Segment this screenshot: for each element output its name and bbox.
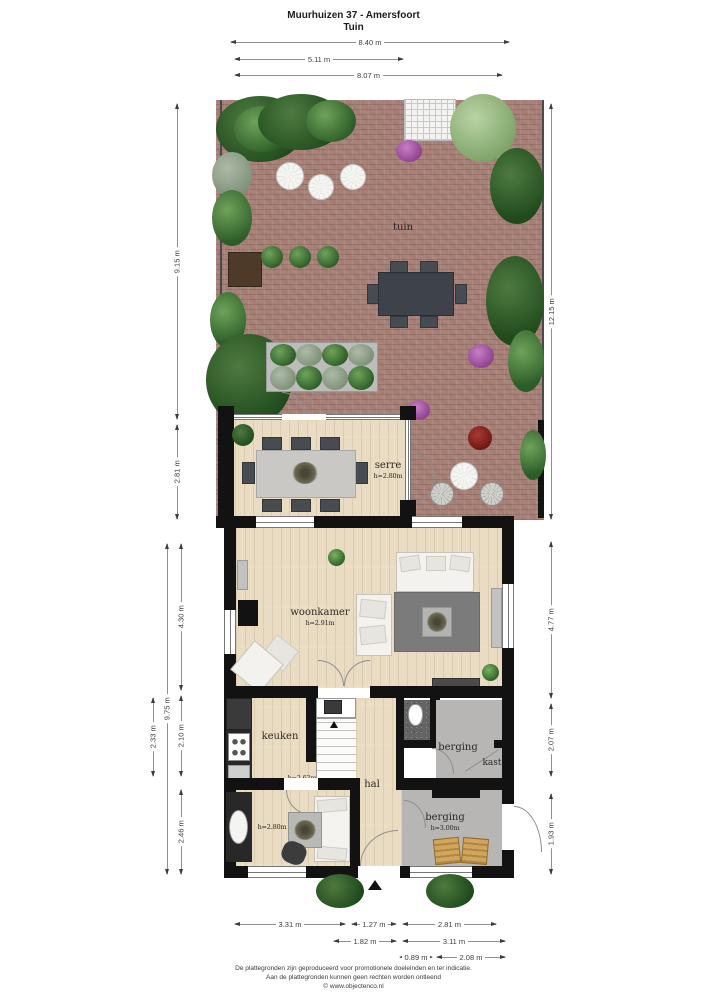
kitchen-cabinet xyxy=(226,698,252,730)
dimension-left-house-total: 9.75 m xyxy=(163,543,172,875)
bush xyxy=(490,148,544,224)
front-door-gap xyxy=(358,866,400,878)
serre-chair xyxy=(320,437,340,450)
footer-copyright: © www.objectenco.nl xyxy=(0,983,707,990)
dimension-top-inner1: 5.11 m xyxy=(234,55,404,64)
dimension-bottom-4: 1.82 m xyxy=(333,937,397,946)
window-woonkamer-north2 xyxy=(412,516,462,528)
serre-chair xyxy=(291,437,311,450)
wall-mid-1 xyxy=(224,686,318,698)
dimension-right-berging-onder: 1.93 m xyxy=(547,793,556,875)
dimension-left-keuken: 2.10 m xyxy=(177,695,186,777)
bush xyxy=(508,330,544,392)
dimension-left-mid: 2.33 m xyxy=(149,697,158,777)
room-height-serre: h=2.80m xyxy=(363,472,413,480)
street-tree xyxy=(426,874,474,908)
room-label-tuin: tuin xyxy=(378,222,428,233)
lounge-chair xyxy=(461,837,489,865)
flower-purple xyxy=(468,344,494,368)
window-bottom-left xyxy=(248,866,306,878)
dimension-left-woonkamer: 4.30 m xyxy=(177,543,186,691)
chimney-stub xyxy=(238,600,258,626)
street-tree xyxy=(316,874,364,908)
dimension-left-kamer: 2.46 m xyxy=(177,789,186,875)
window-left xyxy=(224,610,236,654)
toilet-wc xyxy=(408,704,423,726)
parasol xyxy=(340,164,366,190)
planter-plant xyxy=(322,344,348,366)
bush xyxy=(212,190,252,246)
serre-chair xyxy=(262,499,282,512)
planter-plant xyxy=(296,344,322,366)
bush xyxy=(306,100,356,142)
dimension-right-berging: 2.07 m xyxy=(547,703,556,777)
parasol xyxy=(308,174,334,200)
window-woonkamer-north1 xyxy=(256,516,314,528)
planter-plant xyxy=(322,366,348,390)
room-label-berging-onder: berging xyxy=(415,812,475,823)
serre-chair xyxy=(262,437,282,450)
entrance-arrow-icon xyxy=(368,880,382,890)
serre-chair xyxy=(291,499,311,512)
houseplant xyxy=(328,549,345,566)
planter-box xyxy=(228,252,262,287)
stair-direction-icon xyxy=(330,721,338,728)
room-label-berging: berging xyxy=(428,742,488,753)
patio-chair xyxy=(480,482,504,506)
dimension-left-serre: 2.81 m xyxy=(173,424,182,520)
serre-chair xyxy=(242,462,255,484)
planter-plant xyxy=(348,366,374,390)
room-height-berging-onder: h=3.00m xyxy=(415,824,475,832)
radiator xyxy=(491,588,502,648)
bush xyxy=(486,256,544,346)
round-bush xyxy=(289,246,311,268)
berging-exterior-door-arc xyxy=(514,806,542,852)
planter-plant xyxy=(270,366,296,390)
sofa-cushion xyxy=(399,555,421,573)
serre-plant xyxy=(232,424,254,446)
plant-red xyxy=(468,426,492,450)
table-plant xyxy=(292,462,318,484)
serre-chair xyxy=(320,499,340,512)
appliance xyxy=(324,700,342,714)
dimension-bottom-5: 3.11 m xyxy=(402,937,506,946)
garden-trellis xyxy=(404,99,456,141)
garden-chair xyxy=(420,316,438,328)
footer-disclaimer-1: De plattegronden zijn geproduceerd voor … xyxy=(0,965,707,972)
houseplant xyxy=(482,664,499,681)
page-title: Muurhuizen 37 - Amersfoort xyxy=(0,10,707,21)
dimension-bottom-3: 2.81 m xyxy=(402,920,497,929)
garden-table xyxy=(378,272,454,316)
garden-chair xyxy=(390,316,408,328)
planter-plant xyxy=(270,344,296,366)
stove xyxy=(228,733,250,761)
room-label-kast: kast xyxy=(470,758,514,768)
berging-onder-chimney xyxy=(432,786,480,798)
patio-round-table xyxy=(450,462,478,490)
flower-purple xyxy=(396,140,422,162)
page-subtitle: Tuin xyxy=(0,22,707,33)
radiator xyxy=(237,560,248,590)
kamer-door-gap xyxy=(284,778,318,790)
dimension-right-garden: 12.15 m xyxy=(547,103,556,520)
wall-kamer-right xyxy=(350,790,360,866)
dimension-top-inner2: 8.07 m xyxy=(234,71,503,80)
planter-plant xyxy=(296,366,322,390)
footer-disclaimer-2: Aan de plattegronden kunnen geen rechten… xyxy=(0,974,707,981)
dimension-right-woonkamer: 4.77 m xyxy=(547,541,556,699)
wall-kast-stub xyxy=(494,740,508,748)
bush xyxy=(520,430,546,480)
room-height-woonkamer: h=2.91m xyxy=(270,619,370,627)
dimension-left-garden: 9.15 m xyxy=(173,103,182,420)
serre-door-gap xyxy=(282,414,326,420)
wall-hal-right xyxy=(396,698,404,778)
dimension-bottom-6: 0.89 m xyxy=(399,953,433,962)
lounge-chair xyxy=(433,837,462,866)
sofa-cushion xyxy=(359,625,387,646)
dimension-bottom-1: 3.31 m xyxy=(234,920,346,929)
door-gap-berging-right xyxy=(502,804,514,850)
dimension-bottom-7: 2.08 m xyxy=(436,953,506,962)
room-label-serre: serre xyxy=(363,460,413,471)
round-bush xyxy=(317,246,339,268)
sofa-cushion xyxy=(449,555,471,573)
serre-corner-wall xyxy=(400,406,416,420)
dimension-top-total: 8.40 m xyxy=(230,38,510,47)
garden-chair xyxy=(455,284,467,304)
sofa-cushion xyxy=(426,556,446,571)
parasol xyxy=(276,162,304,190)
wall-mid-2 xyxy=(370,686,514,698)
floorplan-page: Muurhuizen 37 - Amersfoort Tuin 8.40 m 5… xyxy=(0,0,707,1000)
bed-pillow xyxy=(316,846,347,862)
room-height-kamer: h=2.80m xyxy=(242,823,302,831)
dimension-bottom-2: 1.27 m xyxy=(351,920,397,929)
planter-plant xyxy=(348,344,374,366)
bed-pillow xyxy=(316,798,347,814)
room-label-keuken: keuken xyxy=(250,731,310,742)
wall-stairs-left xyxy=(306,698,316,762)
room-label-woonkamer: woonkamer xyxy=(270,607,370,618)
round-bush xyxy=(261,246,283,268)
coffee-table-plant xyxy=(427,612,447,632)
serre-left-wall xyxy=(218,406,234,520)
window-right xyxy=(502,584,514,648)
